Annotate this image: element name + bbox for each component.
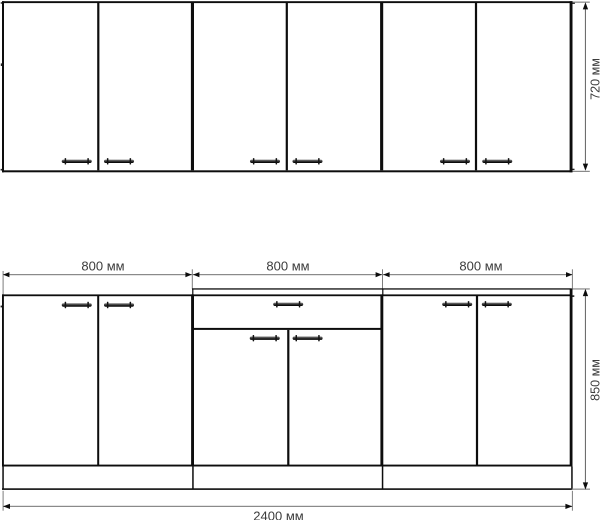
svg-text:2400 мм: 2400 мм [253,509,303,520]
svg-text:800 мм: 800 мм [266,259,309,274]
svg-text:800 мм: 800 мм [81,259,124,274]
svg-text:850 мм: 850 мм [589,359,600,401]
svg-text:800 мм: 800 мм [459,259,502,274]
svg-text:720 мм: 720 мм [589,58,600,100]
